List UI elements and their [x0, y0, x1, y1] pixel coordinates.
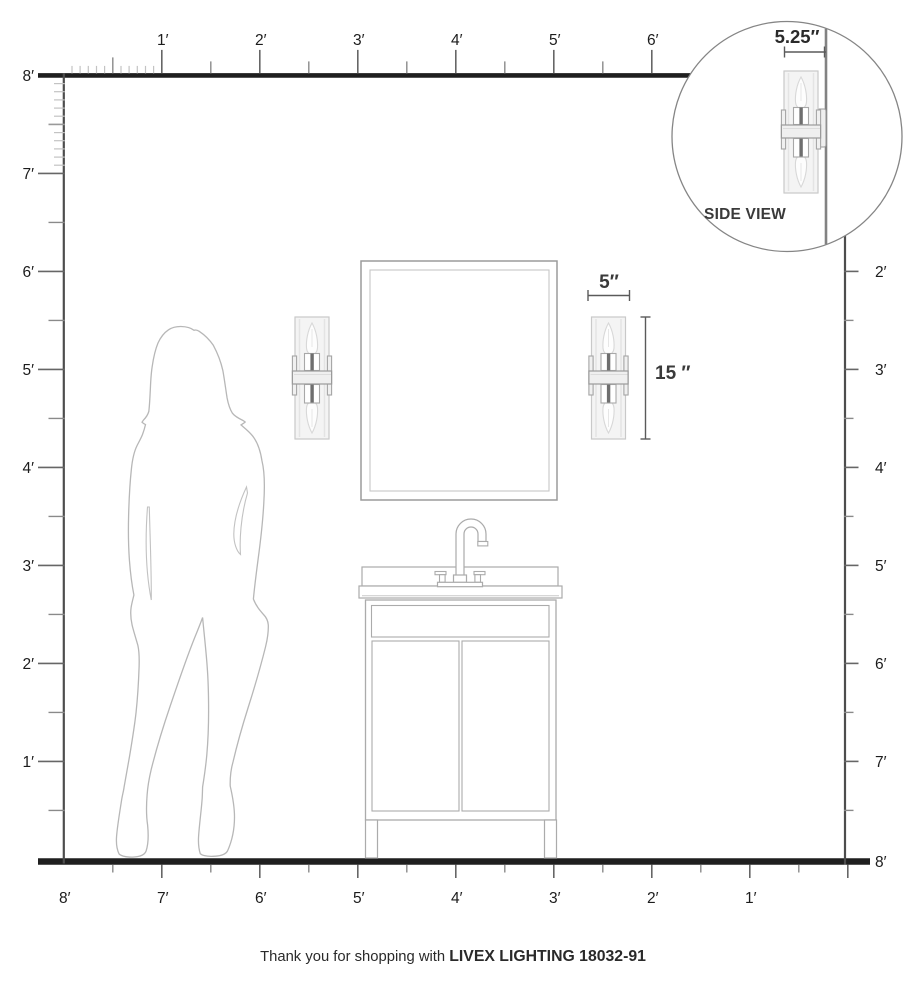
svg-text:8′: 8′ [59, 890, 71, 907]
svg-text:2′: 2′ [875, 264, 887, 281]
svg-text:5′: 5′ [353, 890, 365, 907]
svg-text:6′: 6′ [647, 32, 659, 49]
svg-text:8′: 8′ [875, 854, 887, 871]
svg-text:7′: 7′ [22, 166, 34, 183]
svg-text:6′: 6′ [22, 264, 34, 281]
svg-text:3′: 3′ [22, 558, 34, 575]
svg-text:2′: 2′ [255, 32, 267, 49]
svg-text:7′: 7′ [157, 890, 169, 907]
svg-text:2′: 2′ [647, 890, 659, 907]
svg-text:4′: 4′ [451, 32, 463, 49]
svg-text:8′: 8′ [22, 68, 34, 85]
svg-text:3′: 3′ [875, 362, 887, 379]
svg-text:1′: 1′ [745, 890, 757, 907]
svg-text:4′: 4′ [875, 460, 887, 477]
svg-text:1′: 1′ [157, 32, 169, 49]
svg-text:5′: 5′ [549, 32, 561, 49]
svg-text:7′: 7′ [875, 754, 887, 771]
svg-text:2′: 2′ [22, 656, 34, 673]
svg-text:5′: 5′ [875, 558, 887, 575]
svg-text:1′: 1′ [22, 754, 34, 771]
svg-text:Thank you for shopping with LI: Thank you for shopping with LIVEX LIGHTI… [260, 948, 646, 965]
svg-text:4′: 4′ [451, 890, 463, 907]
svg-text:5′: 5′ [22, 362, 34, 379]
svg-text:5″: 5″ [599, 272, 619, 293]
svg-text:SIDE VIEW: SIDE VIEW [704, 206, 786, 223]
svg-text:6′: 6′ [255, 890, 267, 907]
svg-text:15 ″: 15 ″ [655, 363, 691, 384]
svg-text:3′: 3′ [353, 32, 365, 49]
svg-text:3′: 3′ [549, 890, 561, 907]
svg-text:6′: 6′ [875, 656, 887, 673]
svg-text:4′: 4′ [22, 460, 34, 477]
svg-text:5.25″: 5.25″ [775, 26, 820, 47]
